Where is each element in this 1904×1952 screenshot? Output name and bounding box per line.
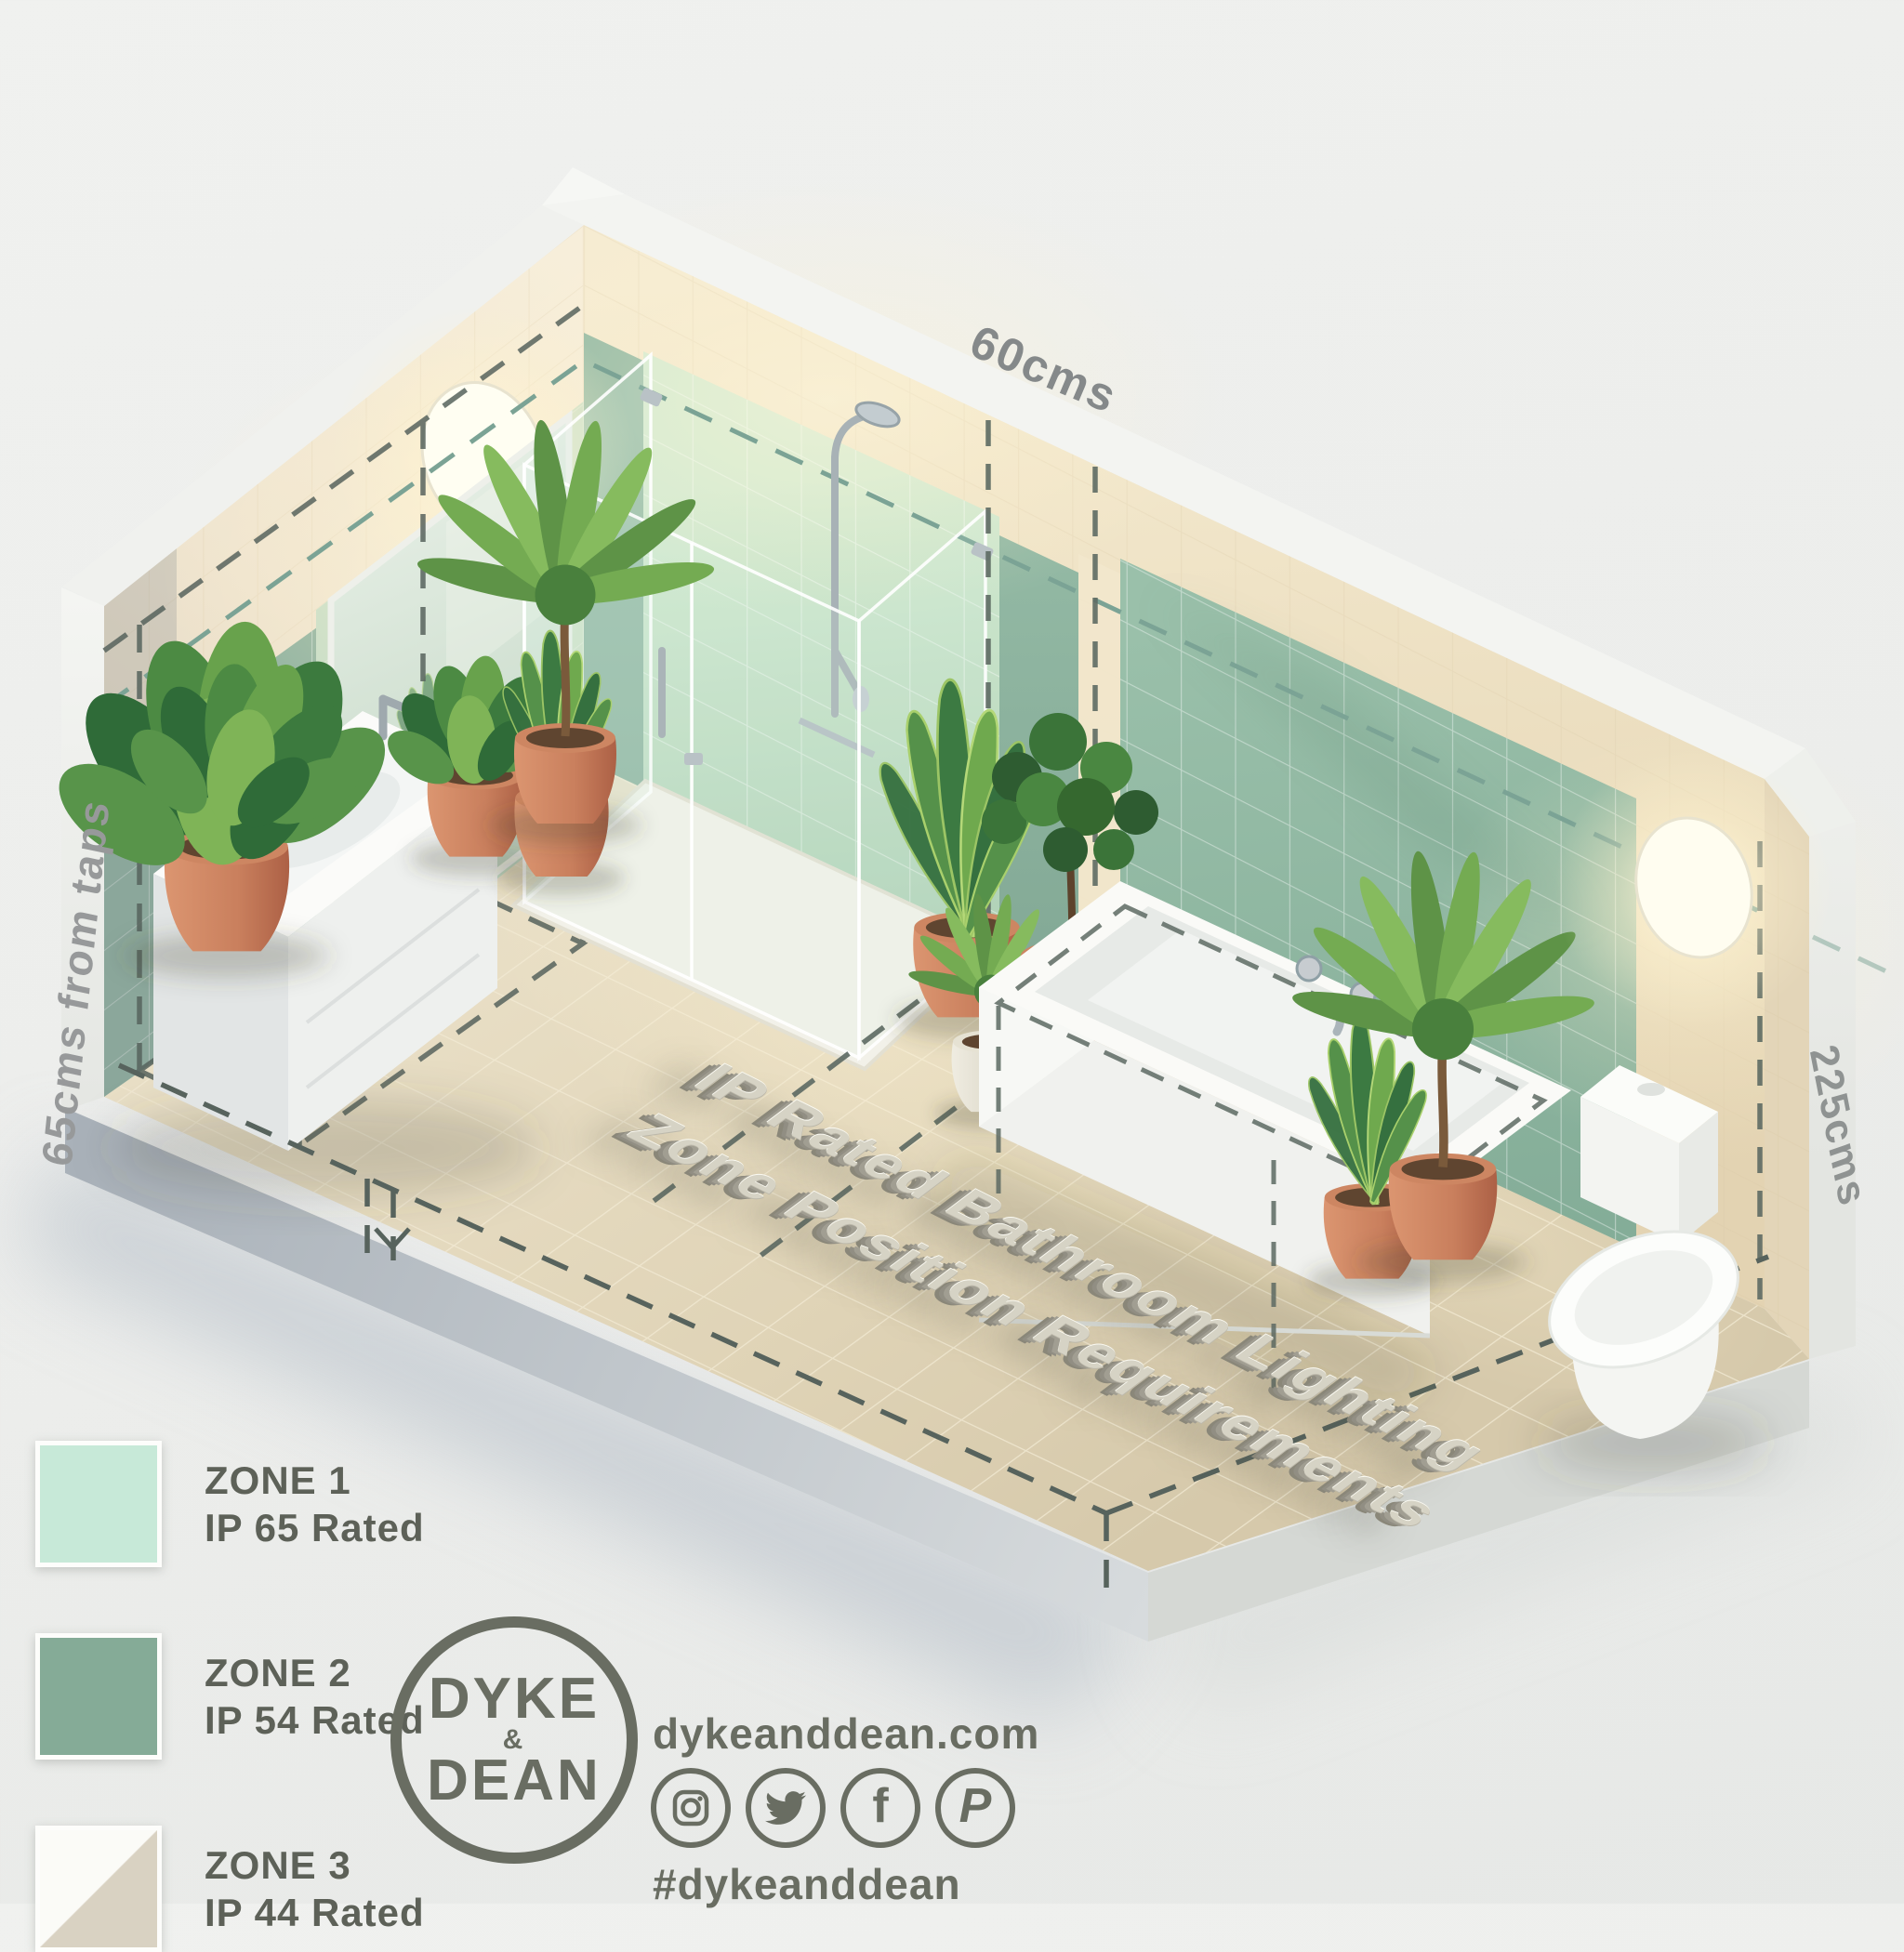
- left-wall-cut-edge: [61, 587, 104, 1112]
- isometric-bathroom-scene: [0, 0, 1904, 1904]
- bathroom-zone-infographic: { "scene": { "title_line1": "IP Rated Ba…: [0, 0, 1904, 1904]
